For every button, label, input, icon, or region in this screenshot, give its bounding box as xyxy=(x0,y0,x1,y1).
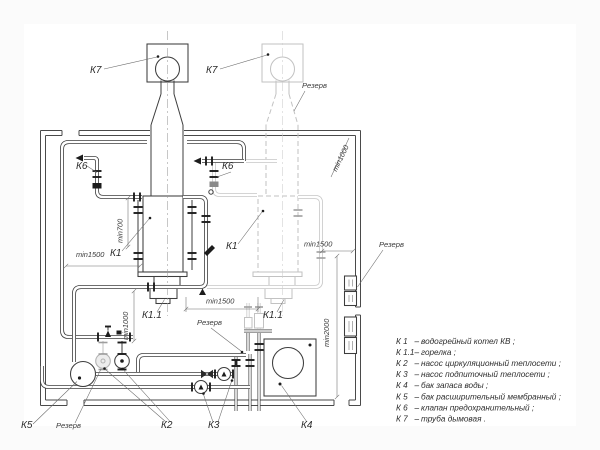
tank-k5 xyxy=(71,362,96,387)
legend-key-5: К 5 xyxy=(396,393,408,402)
dimension-min1000-topright: min1000 xyxy=(330,138,351,177)
tank-k4 xyxy=(264,339,316,396)
dimension-min2000-right: min2000 xyxy=(322,254,339,399)
label-k6-left: К6 xyxy=(76,161,88,172)
label-k6-right: К6 xyxy=(222,161,234,172)
legend-dash-2: – xyxy=(414,359,420,368)
label-k7-right: К7 xyxy=(206,65,218,76)
boiler-k1-reserve xyxy=(253,196,303,286)
pumps-k3 xyxy=(192,368,233,394)
dimension-min1000-left: min1000 xyxy=(121,289,136,343)
legend-desc-7: труба дымовая . xyxy=(421,415,486,424)
legend-key-4: К 4 xyxy=(396,381,408,390)
dim-min1000-topright-label: min1000 xyxy=(330,143,351,173)
legend-key-1: К 1.1 xyxy=(396,348,414,357)
legend-dash-7: – xyxy=(414,415,420,424)
reserve-fuel-line xyxy=(244,303,264,329)
label-k5: К5 xyxy=(21,420,33,431)
label-k11-left: К1.1 xyxy=(142,310,162,321)
legend-dash-6: – xyxy=(414,404,420,413)
legend-desc-2: насос циркуляционный теплосети ; xyxy=(421,359,561,368)
legend-key-2: К 2 xyxy=(396,359,408,368)
label-k1-left: К1 xyxy=(110,248,121,259)
dimension-min1500-left: min1500 xyxy=(64,250,142,268)
boiler-k1 xyxy=(134,190,214,286)
legend-dash-0: – xyxy=(414,337,420,346)
dim-min1500-left-label: min1500 xyxy=(76,250,105,259)
legend-key-7: К 7 xyxy=(396,415,408,424)
label-k3: К3 xyxy=(208,420,220,431)
label-reserve-bottomleft: Резерв xyxy=(56,421,81,430)
label-k11-right: К1.1 xyxy=(263,310,283,321)
legend-desc-5: бак расширительный мембранный ; xyxy=(421,393,561,402)
boiler-room-drawing: min700 min1500 min1000 min1500 min1500 xyxy=(0,0,600,450)
legend-desc-3: насос подпиточный теплосети ; xyxy=(421,370,550,379)
legend-desc-6: клапан предохранительный ; xyxy=(421,404,534,413)
dim-min700-label: min700 xyxy=(116,218,125,243)
legend-key-3: К 3 xyxy=(396,370,408,379)
legend-desc-4: бак запаса воды ; xyxy=(421,381,488,390)
dim-min2000-label: min2000 xyxy=(322,318,331,347)
legend-key-0: К 1 xyxy=(396,337,408,346)
legend-key-6: К 6 xyxy=(396,404,408,413)
dim-min1500-center-label: min1500 xyxy=(206,297,235,306)
wall-mask xyxy=(150,127,184,198)
label-reserve-center: Резерв xyxy=(197,318,222,327)
legend-desc-1: горелка ; xyxy=(421,348,456,357)
legend-dash-4: – xyxy=(414,381,420,390)
label-reserve-top: Резерв xyxy=(302,81,327,90)
label-k1-right: К1 xyxy=(226,241,237,252)
legend: К 1 – водогрейный котел КВ ; К 1.1 – гор… xyxy=(396,337,561,424)
dimension-min1500-right: min1500 xyxy=(304,240,355,254)
dimension-min700: min700 xyxy=(116,196,131,249)
legend-dash-3: – xyxy=(414,370,420,379)
dim-min1500-right-label: min1500 xyxy=(304,240,333,249)
label-reserve-right: Резерв xyxy=(379,240,404,249)
legend-dash-5: – xyxy=(414,393,420,402)
wall-panels xyxy=(345,276,357,354)
label-k2: К2 xyxy=(161,420,173,431)
schematic-svg: min700 min1500 min1000 min1500 min1500 xyxy=(0,0,600,450)
label-k7-left: К7 xyxy=(90,65,102,76)
legend-desc-0: водогрейный котел КВ ; xyxy=(421,337,515,346)
label-k4: К4 xyxy=(301,420,313,431)
dim-min1000-left-label: min1000 xyxy=(121,311,130,340)
legend-dash-1: – xyxy=(414,348,420,357)
